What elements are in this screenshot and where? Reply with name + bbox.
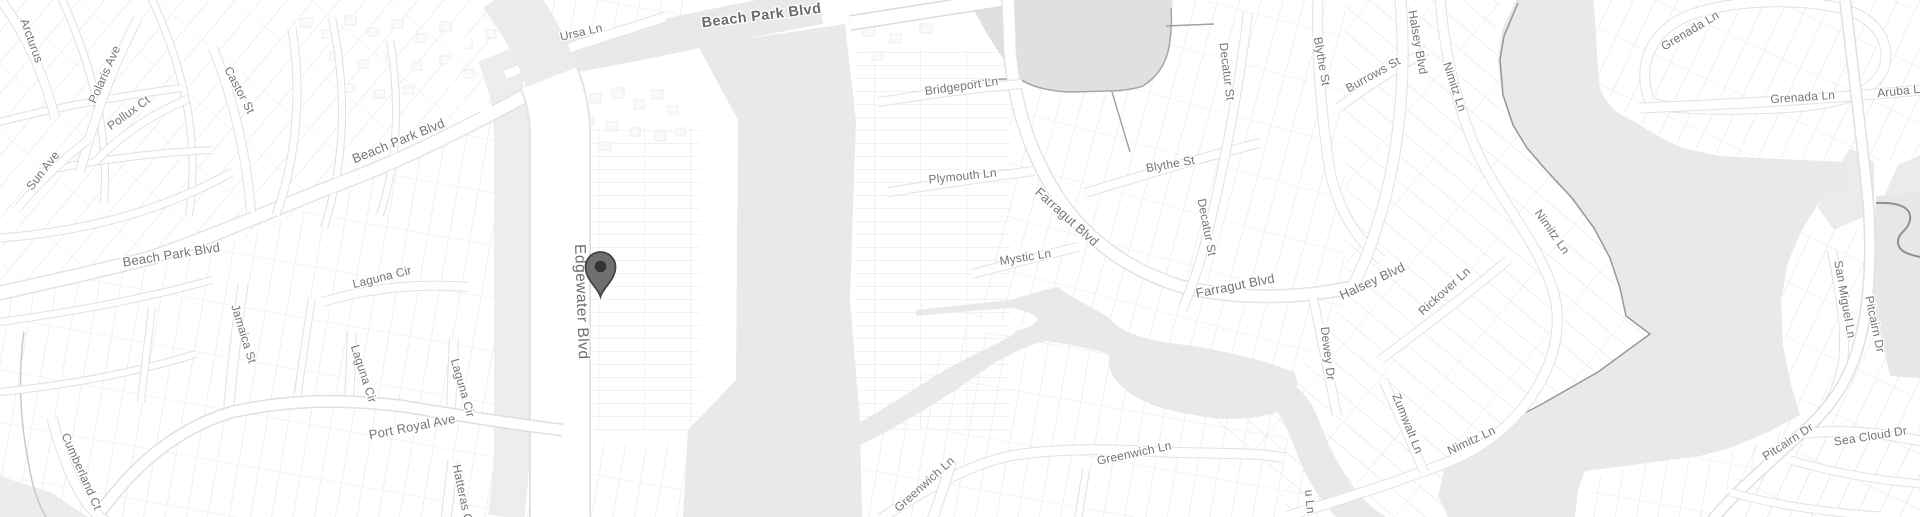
svg-text:u Ln: u Ln <box>1302 489 1318 514</box>
